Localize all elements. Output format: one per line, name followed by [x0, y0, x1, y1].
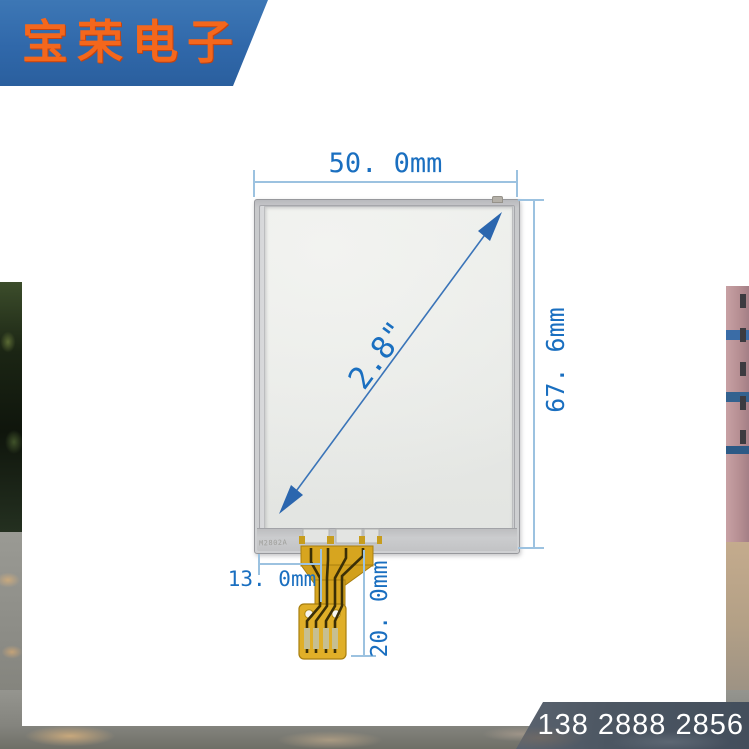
dim-height-tick-top: [518, 199, 544, 201]
dimension-width-label: 50. 0mm: [253, 148, 518, 179]
brand-banner: 宝荣电子: [0, 0, 268, 86]
dim-height-tick-bottom: [518, 547, 544, 549]
dim-height-line: [533, 200, 535, 548]
dimension-fpc-length-label: 20. 0mm: [367, 550, 395, 668]
dim-offset-line: [258, 563, 321, 565]
product-image: M2802A: [0, 0, 749, 749]
dimension-height-label: 67. 6mm: [541, 260, 571, 460]
dim-taillen-line: [363, 550, 365, 657]
contact-tabs: [299, 529, 382, 544]
dimension-fpc-offset-label: 13. 0mm: [204, 567, 340, 591]
phone-number: 138 2888 2856: [537, 702, 744, 749]
dim-width-line: [253, 181, 518, 183]
brand-logo-text: 宝荣电子: [22, 14, 252, 72]
